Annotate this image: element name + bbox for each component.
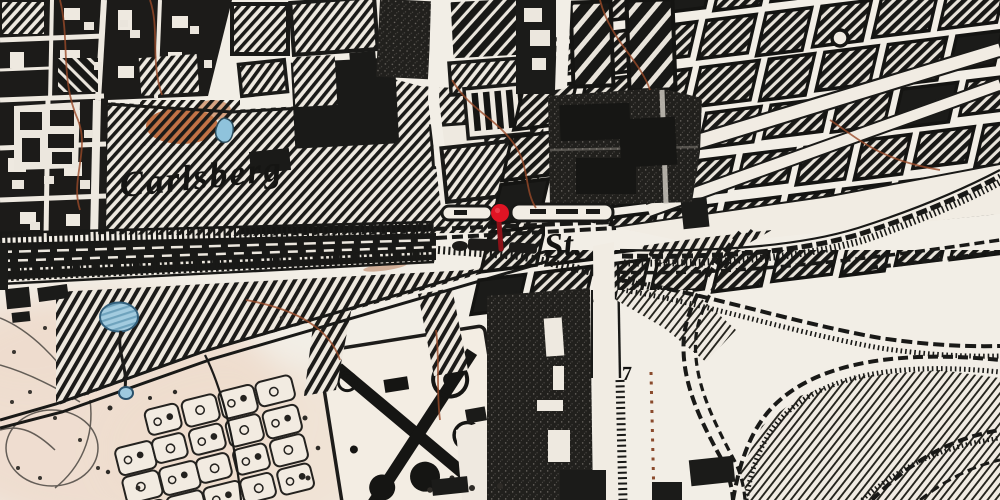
svg-text:St.: St. <box>542 224 583 266</box>
svg-text:7: 7 <box>622 363 632 385</box>
